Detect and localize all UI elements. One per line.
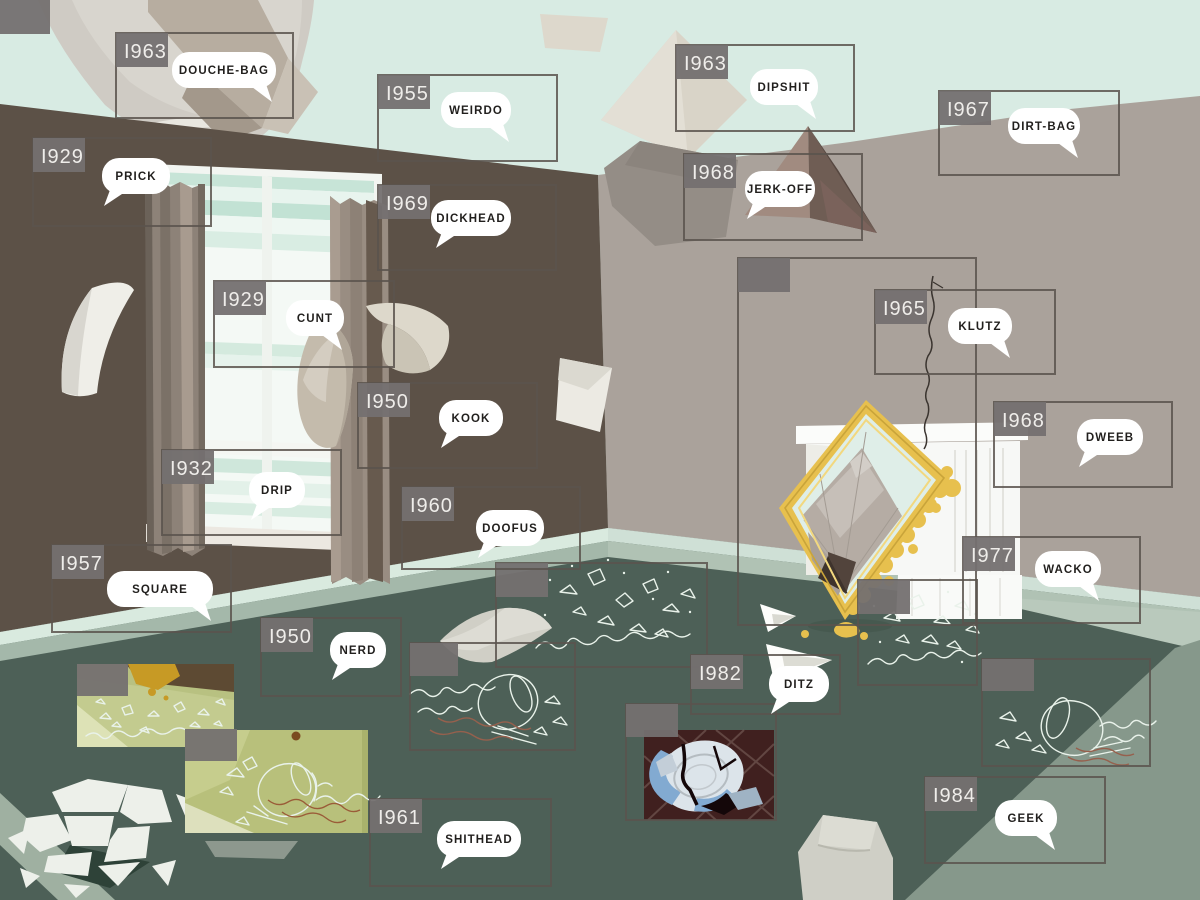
svg-text:KLUTZ: KLUTZ bbox=[958, 321, 1001, 333]
svg-text:DIPSHIT: DIPSHIT bbox=[757, 82, 810, 94]
svg-text:I929: I929 bbox=[222, 289, 265, 311]
svg-text:I932: I932 bbox=[170, 458, 213, 480]
svg-text:I950: I950 bbox=[269, 626, 312, 648]
svg-text:I963: I963 bbox=[124, 41, 167, 63]
svg-text:KOOK: KOOK bbox=[452, 413, 491, 425]
svg-text:DWEEB: DWEEB bbox=[1086, 432, 1134, 444]
svg-text:CUNT: CUNT bbox=[297, 313, 333, 325]
svg-text:GEEK: GEEK bbox=[1008, 813, 1045, 825]
svg-text:I968: I968 bbox=[692, 162, 735, 184]
svg-text:WEIRDO: WEIRDO bbox=[449, 105, 503, 117]
svg-text:I963: I963 bbox=[684, 53, 727, 75]
svg-text:DOUCHE-BAG: DOUCHE-BAG bbox=[179, 65, 269, 77]
svg-text:WACKO: WACKO bbox=[1043, 564, 1093, 576]
svg-text:DITZ: DITZ bbox=[784, 679, 814, 691]
svg-text:I957: I957 bbox=[60, 553, 103, 575]
svg-text:I984: I984 bbox=[933, 785, 976, 807]
svg-text:I950: I950 bbox=[366, 391, 409, 413]
svg-text:DOOFUS: DOOFUS bbox=[482, 523, 538, 535]
svg-text:SHITHEAD: SHITHEAD bbox=[445, 834, 513, 846]
svg-text:I929: I929 bbox=[41, 146, 84, 168]
svg-text:I968: I968 bbox=[1002, 410, 1045, 432]
svg-text:SQUARE: SQUARE bbox=[132, 584, 188, 596]
svg-text:I965: I965 bbox=[883, 298, 926, 320]
svg-text:I960: I960 bbox=[410, 495, 453, 517]
svg-text:I961: I961 bbox=[378, 807, 421, 829]
svg-text:DICKHEAD: DICKHEAD bbox=[436, 213, 506, 225]
svg-text:I977: I977 bbox=[971, 545, 1014, 567]
svg-text:DRIP: DRIP bbox=[261, 485, 293, 497]
svg-text:JERK-OFF: JERK-OFF bbox=[747, 184, 813, 196]
svg-text:I955: I955 bbox=[386, 83, 429, 105]
svg-text:NERD: NERD bbox=[340, 645, 377, 657]
svg-text:I967: I967 bbox=[947, 99, 990, 121]
svg-text:PRICK: PRICK bbox=[115, 171, 156, 183]
svg-text:I982: I982 bbox=[699, 663, 742, 685]
svg-text:I969: I969 bbox=[386, 193, 429, 215]
svg-text:DIRT-BAG: DIRT-BAG bbox=[1012, 121, 1076, 133]
